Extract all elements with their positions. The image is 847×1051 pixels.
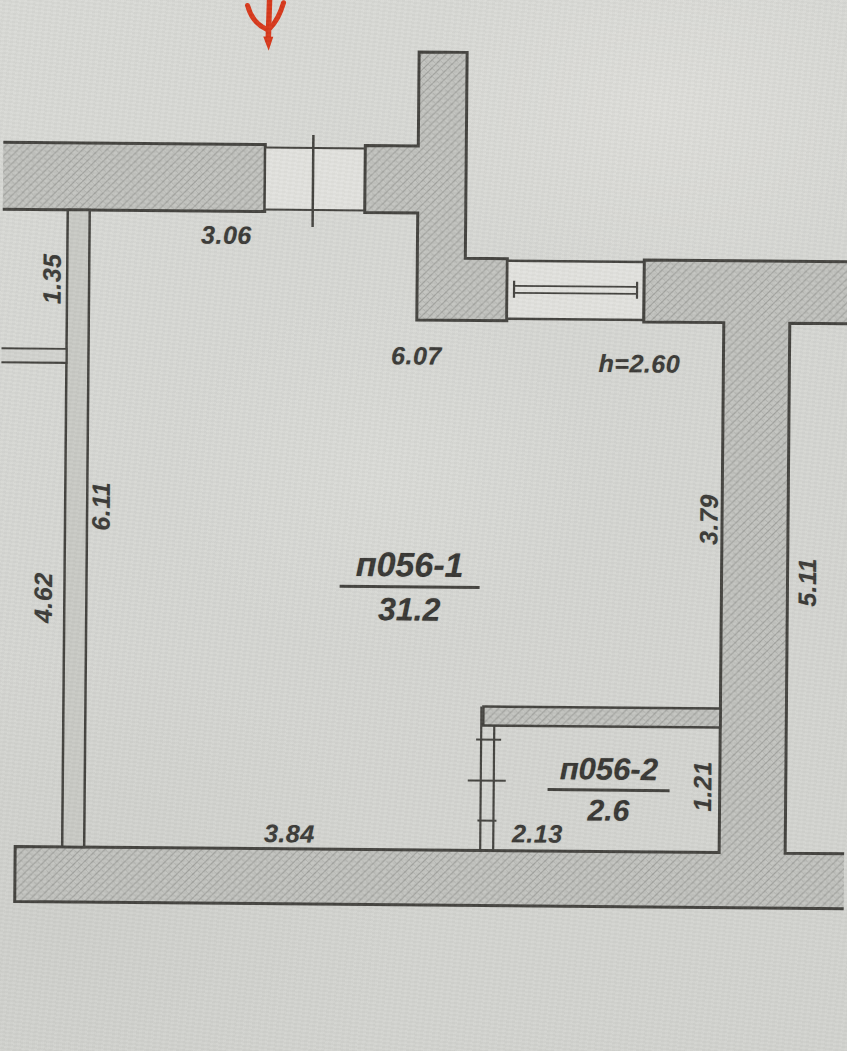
dim-room2-height: 1.21 (688, 761, 717, 812)
dim-neighbor-room-height: 5.11 (793, 558, 822, 607)
window-opening (507, 261, 645, 320)
wall-top-left (0, 142, 265, 211)
entrance-arrow-icon (247, 0, 283, 51)
room2-door-jamb (467, 706, 506, 850)
top-doorway-tick (313, 135, 314, 227)
ceiling-height-note: h=2.60 (599, 349, 681, 379)
top-doorway-opening (265, 148, 366, 211)
dim-left-corridor-height: 4.62 (29, 572, 58, 623)
dim-room1-right-height: 3.79 (694, 494, 723, 545)
room2-label: п056-2 2.6 (547, 751, 670, 828)
dim-room1-left-height: 6.11 (86, 482, 115, 531)
dim-room1-bottom-width: 3.84 (264, 819, 315, 848)
room1-area: 31.2 (378, 591, 441, 629)
wall-room2-top (483, 707, 720, 728)
room2-area: 2.6 (588, 793, 630, 827)
dim-left-niche-height: 1.35 (37, 253, 66, 304)
room1-name: п056-1 (340, 545, 480, 589)
wall-top-column (364, 51, 509, 320)
room1-label: п056-1 31.2 (339, 545, 479, 629)
floor-plan: 3.06 1.35 6.07 h=2.60 6.11 4.62 3.79 5.1… (0, 0, 847, 1051)
dim-room1-width: 6.07 (391, 341, 442, 370)
dim-top-wall-width: 3.06 (201, 221, 252, 250)
floor-plan-scan: 3.06 1.35 6.07 h=2.60 6.11 4.62 3.79 5.1… (0, 0, 847, 1051)
wall-left-divider (0, 348, 67, 363)
room2-name: п056-2 (548, 751, 671, 792)
